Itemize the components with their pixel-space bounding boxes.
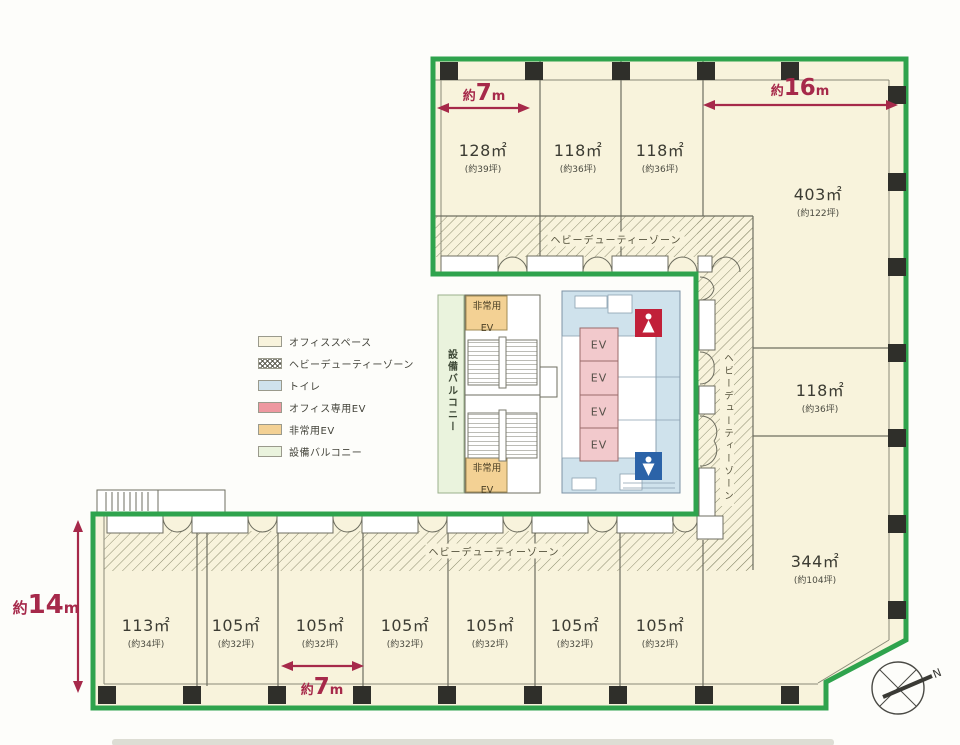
office-space-swatch — [258, 336, 282, 347]
room-label: 105㎡ (約32坪) — [212, 612, 261, 650]
room-tsubo: (約39坪) — [459, 162, 508, 175]
female-toilet-icon — [635, 309, 662, 337]
legend-item: トイレ — [258, 374, 414, 396]
emergency-ev-label-top: 非常用 EV — [473, 291, 502, 335]
dimension-bottom: 約7m — [301, 674, 344, 700]
external-stair — [97, 490, 225, 513]
room-label: 128㎡ (約39坪) — [459, 137, 508, 175]
office-ev-swatch — [258, 402, 282, 413]
heavy-duty-zone-label-bottom: ヘビーデューティーゾーン — [426, 544, 563, 559]
room-label: 403㎡ (約122坪) — [794, 181, 843, 219]
room-label: 344㎡ (約104坪) — [791, 548, 840, 586]
dimension-left: 約14m — [13, 590, 80, 620]
room-label: 118㎡ (約36坪) — [636, 137, 685, 175]
ev-label: EV — [591, 372, 607, 385]
emergency-ev-swatch — [258, 424, 282, 435]
legend-item: 設備バルコニー — [258, 440, 414, 462]
dimension-top-left: 約7m — [463, 80, 506, 106]
emergency-ev-label-bottom: 非常用 EV — [473, 453, 502, 497]
room-label: 105㎡ (約32坪) — [636, 612, 685, 650]
bottom-cutoff-bar — [112, 739, 834, 745]
legend: オフィススペース ヘビーデューティーゾーン トイレ オフィス専用EV 非常用EV… — [258, 330, 414, 462]
equipment-balcony-swatch — [258, 446, 282, 457]
toilet-swatch — [258, 380, 282, 391]
door-row-core-right — [699, 277, 717, 518]
ev-label: EV — [591, 406, 607, 419]
ev-label: EV — [591, 439, 607, 452]
legend-item: ヘビーデューティーゾーン — [258, 352, 414, 374]
equipment-balcony-label: 設備バルコニー — [444, 349, 459, 433]
legend-item: オフィス専用EV — [258, 396, 414, 418]
room-label: 118㎡ (約36坪) — [554, 137, 603, 175]
male-toilet-icon — [635, 452, 662, 480]
heavy-duty-swatch — [258, 358, 282, 369]
dimension-top-right: 約16m — [771, 75, 830, 101]
compass-icon — [872, 662, 932, 714]
room-label: 105㎡ (約32坪) — [381, 612, 430, 650]
ev-label: EV — [591, 339, 607, 352]
room-label: 118㎡ (約36坪) — [796, 377, 845, 415]
room-label: 113㎡ (約34坪) — [122, 612, 171, 650]
legend-item: オフィススペース — [258, 330, 414, 352]
heavy-duty-zone-label-right: ヘビーデューティーゾーン — [720, 350, 734, 506]
floor-plan-page: 128㎡ (約39坪) 118㎡ (約36坪) 118㎡ (約36坪) 403㎡… — [0, 0, 960, 745]
legend-item: 非常用EV — [258, 418, 414, 440]
room-area: 128㎡ — [459, 137, 508, 161]
service-box — [697, 516, 723, 539]
room-label: 105㎡ (約32坪) — [551, 612, 600, 650]
room-label: 105㎡ (約32坪) — [466, 612, 515, 650]
heavy-duty-zone-label-top: ヘビーデューティーゾーン — [548, 232, 685, 247]
room-label: 105㎡ (約32坪) — [296, 612, 345, 650]
toilet-ev-block — [562, 291, 680, 493]
